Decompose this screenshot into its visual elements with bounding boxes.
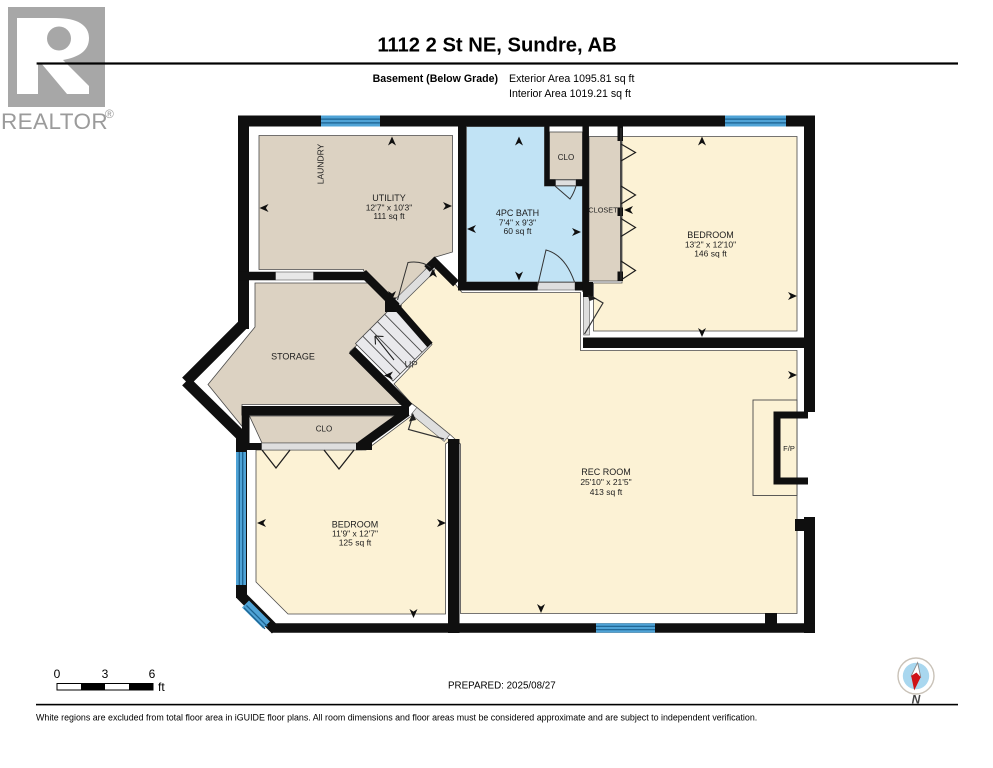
svg-text:UP: UP [405, 360, 418, 371]
svg-text:Basement (Below Grade): Basement (Below Grade) [373, 73, 498, 85]
svg-text:CLOSET: CLOSET [588, 206, 618, 215]
svg-text:REC ROOM: REC ROOM [581, 467, 631, 477]
svg-text:0: 0 [54, 667, 61, 681]
svg-text:413 sq ft: 413 sq ft [590, 487, 623, 497]
svg-text:60 sq ft: 60 sq ft [504, 226, 533, 236]
svg-text:PREPARED: 2025/08/27: PREPARED: 2025/08/27 [448, 681, 556, 692]
svg-text:25'10" x 21'5": 25'10" x 21'5" [580, 477, 631, 487]
svg-text:LAUNDRY: LAUNDRY [316, 143, 326, 184]
svg-text:CLO: CLO [316, 425, 332, 434]
svg-text:BEDROOM: BEDROOM [687, 230, 734, 240]
svg-text:146 sq ft: 146 sq ft [694, 249, 727, 259]
svg-text:ft: ft [158, 680, 165, 694]
svg-text:REALTOR: REALTOR [1, 109, 108, 134]
svg-text:Exterior Area 1095.81 sq ft: Exterior Area 1095.81 sq ft [509, 73, 634, 85]
svg-text:111 sq ft: 111 sq ft [373, 211, 405, 221]
svg-text:125 sq ft: 125 sq ft [339, 538, 372, 548]
svg-text:6: 6 [149, 667, 156, 681]
svg-text:CLO: CLO [558, 153, 574, 162]
svg-text:1112 2 St NE, Sundre, AB: 1112 2 St NE, Sundre, AB [377, 35, 616, 57]
svg-text:®: ® [105, 107, 114, 121]
svg-text:White regions are excluded fro: White regions are excluded from total fl… [36, 713, 757, 723]
svg-text:UTILITY: UTILITY [372, 193, 406, 203]
svg-text:3: 3 [102, 667, 109, 681]
svg-text:4PC BATH: 4PC BATH [496, 208, 539, 218]
svg-text:STORAGE: STORAGE [271, 352, 315, 362]
svg-text:Interior Area 1019.21 sq ft: Interior Area 1019.21 sq ft [509, 88, 631, 100]
svg-text:F/P: F/P [783, 444, 795, 453]
